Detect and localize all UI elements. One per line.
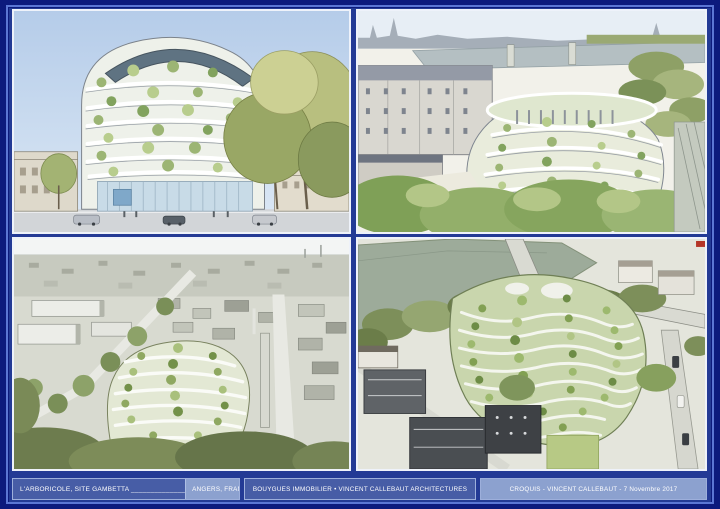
project-title: L'ARBORICOLE, SITE GAMBETTA ____________… (13, 486, 185, 493)
street-view-drawing (14, 11, 349, 232)
credit-date-label: CROQUIS - VINCENT CALLEBAUT - 7 Novembre… (510, 486, 678, 493)
project-location: ANGERS, FRANCE (185, 479, 240, 499)
sky (14, 239, 349, 255)
glass-ground-floor (98, 181, 253, 211)
rail-strip (674, 122, 705, 232)
far-bank-green (587, 35, 705, 44)
lawn (547, 435, 599, 469)
sketch-panel-close-aerial-view (356, 237, 707, 471)
sketch-panel-street-view (12, 9, 351, 234)
presentation-sheet: { "sheet": { "frame_color": "#0c1a7d", "… (0, 0, 720, 509)
caption-bar: L'ARBORICOLE, SITE GAMBETTA ____________… (12, 478, 707, 500)
pale-tower (261, 333, 270, 427)
caption-project-box: L'ARBORICOLE, SITE GAMBETTA ____________… (12, 478, 240, 500)
sketch-panel-aerial-river-view (356, 9, 707, 234)
city-aerial-drawing (14, 239, 349, 469)
sketch-panel-city-aerial-view (12, 237, 351, 471)
caption-client-box: BOUYGUES IMMOBILIER • VINCENT CALLEBAUT … (244, 478, 476, 500)
close-aerial-drawing (358, 239, 705, 469)
aerial-river-drawing (358, 11, 705, 232)
client-architect-label: BOUYGUES IMMOBILIER • VINCENT CALLEBAUT … (253, 486, 467, 493)
caption-credit-box: CROQUIS - VINCENT CALLEBAUT - 7 Novembre… (480, 478, 707, 500)
